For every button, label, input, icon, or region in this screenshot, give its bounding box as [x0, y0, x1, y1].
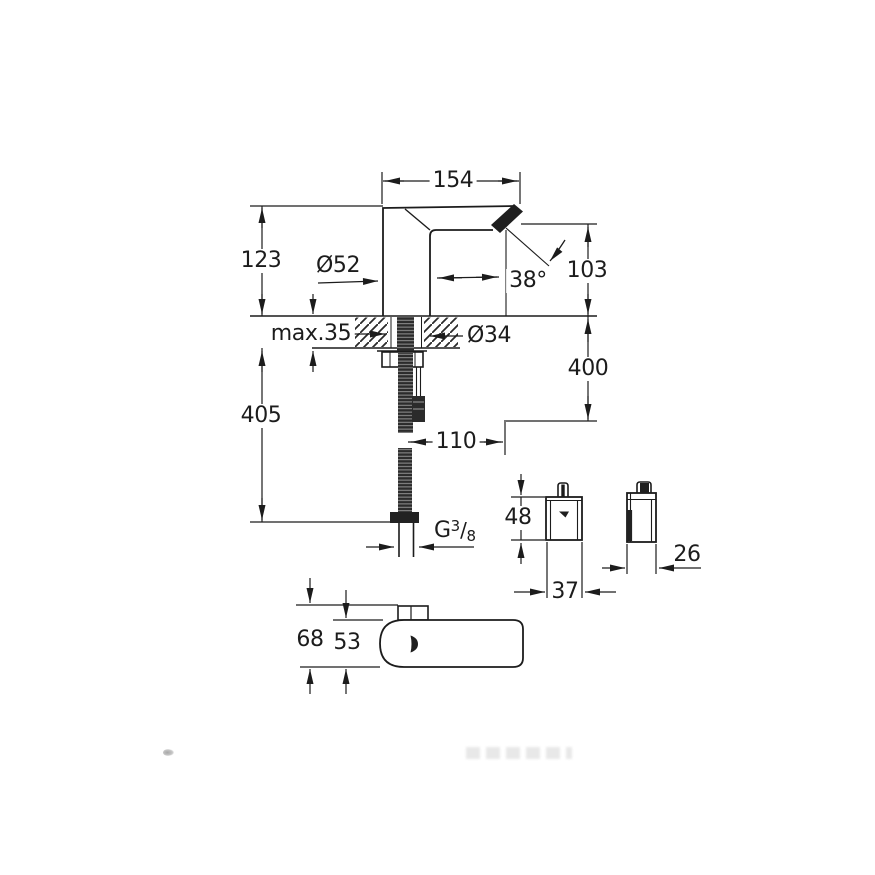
faucet-top-view	[380, 606, 523, 667]
dim-top-view-total-depth-label: 68	[293, 628, 326, 652]
dim-hose-length-label: 405	[238, 404, 285, 428]
dim-thread-size-label: G3/8	[431, 514, 479, 548]
dim-top-view-body-depth-label: 53	[330, 631, 363, 655]
dim-power-unit-depth-label: 26	[670, 543, 703, 567]
dim-spout-width-label: 154	[430, 169, 477, 193]
top-view-spout-tip	[398, 606, 428, 620]
dim-spray-angle-label: 38°	[506, 269, 550, 293]
thread-tailpiece	[399, 523, 414, 557]
dim-height-above-deck-label: 123	[238, 249, 285, 273]
dim-supply-offset-label: 110	[433, 430, 480, 454]
dim-deck-thickness-label: max.35	[268, 322, 355, 346]
flexible-hose-upper	[398, 353, 413, 433]
faucet-front-view	[383, 204, 523, 316]
faint-print-mark	[163, 749, 174, 756]
flexible-hose-lower	[398, 448, 412, 512]
power-unit-side-view	[627, 482, 656, 542]
hose-end-fitting	[390, 512, 419, 523]
dim-hole-diameter-label: Ø34	[464, 324, 514, 348]
supply-shank-and-hose	[377, 317, 427, 557]
dim-power-unit-width-label: 37	[548, 580, 581, 604]
dim-power-unit-height-label: 48	[501, 506, 534, 530]
sensor-cable	[417, 367, 421, 396]
dim-outlet-to-deck-label: 103	[564, 259, 611, 283]
thread-prefix: G	[434, 518, 451, 543]
dim-supply-drop-label: 400	[565, 357, 612, 381]
thread-numerator: 3	[451, 517, 461, 535]
technical-drawing-canvas: 154 123 Ø52 38° 103 max.35 Ø34 400 405 1…	[0, 0, 875, 875]
thread-denominator: 8	[467, 527, 477, 545]
power-unit-front-view	[546, 483, 582, 540]
dim-body-diameter-label: Ø52	[313, 254, 363, 278]
dimension-lines-power-unit	[511, 474, 701, 598]
faint-watermark-smudge	[466, 747, 572, 759]
